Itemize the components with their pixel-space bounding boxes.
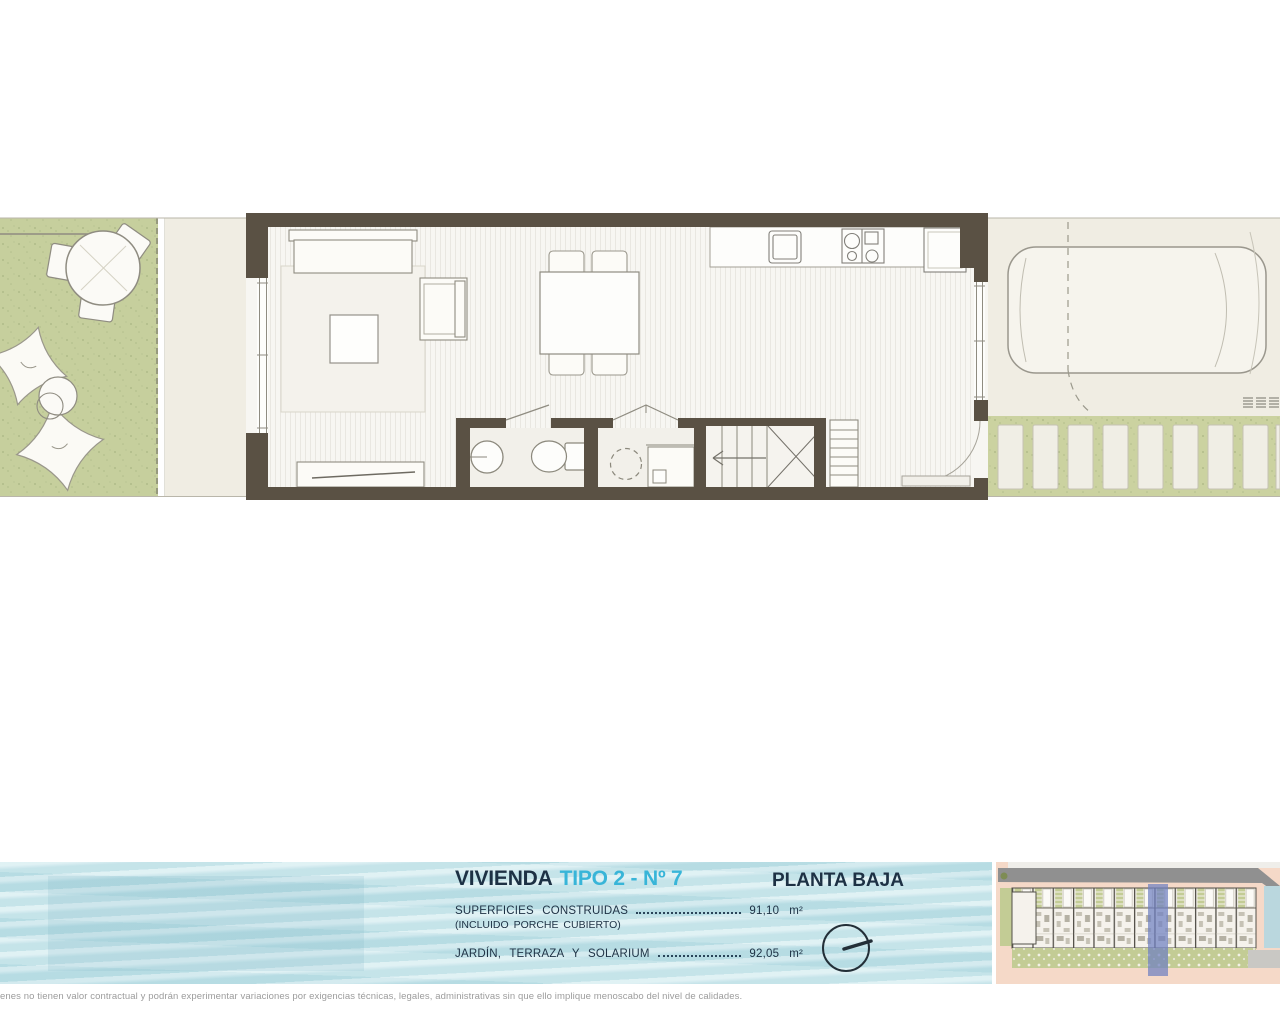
right-window (974, 282, 985, 400)
site-plan-tree (1001, 873, 1008, 880)
plan-level-label: PLANTA BAJA (772, 870, 904, 892)
sofa (289, 230, 417, 273)
washbasin (470, 441, 503, 473)
garden-area (0, 218, 165, 498)
compass-needle (844, 941, 871, 949)
site-plan-highlighted-unit (1148, 884, 1168, 976)
site-plan-thumbnail (996, 862, 1280, 984)
spec-unit: m² (789, 905, 803, 917)
surface-specs: SUPERFICIES CONSTRUIDAS 91,10 m² (INCLUI… (455, 905, 803, 960)
unit-title-type: TIPO 2 - Nº 7 (560, 867, 683, 890)
north-compass-icon (818, 920, 874, 976)
car-outline (1008, 247, 1266, 373)
kitchen-counter (710, 227, 960, 267)
site-plan-pool (1264, 886, 1280, 948)
stair-upper-flight (830, 420, 858, 487)
spec-row-garden-surface: JARDÍN, TERRAZA Y SOLARIUM 92,05 m² (455, 948, 803, 960)
spec-label: JARDÍN, TERRAZA Y SOLARIUM (455, 948, 650, 960)
spec-sublabel: (INCLUIDO PORCHE CUBIERTO) (455, 919, 803, 931)
spec-label: SUPERFICIES CONSTRUIDAS (455, 905, 628, 917)
spec-row-built-surface: SUPERFICIES CONSTRUIDAS 91,10 m² (455, 905, 803, 917)
dining-table (540, 272, 639, 354)
cooktop (842, 229, 884, 263)
water-texture-overlay (48, 876, 364, 971)
legal-disclaimer: enes no tienen valor contractual y podrá… (0, 991, 742, 1002)
dotted-leader (658, 955, 742, 957)
house (246, 213, 988, 500)
floor-plan-sheet: VIVIENDATIPO 2 - Nº 7 PLANTA BAJA SUPERF… (0, 0, 1280, 1024)
walkway-area (988, 416, 1280, 497)
tv-unit (297, 462, 424, 487)
kitchen (710, 227, 966, 272)
site-plan-unit-row (1012, 888, 1256, 948)
coffee-table (330, 315, 378, 363)
site-plan-corner-unit (1012, 892, 1036, 944)
dotted-leader (636, 912, 741, 914)
toilet (532, 441, 589, 472)
unit-title: VIVIENDATIPO 2 - Nº 7 (455, 867, 683, 891)
staircase (706, 420, 858, 487)
unit-title-prefix: VIVIENDA (455, 867, 553, 890)
doormat (902, 476, 970, 486)
spec-value: 91,10 (749, 905, 779, 917)
fridge (924, 228, 966, 272)
spec-unit: m² (789, 948, 803, 960)
parking-area (988, 218, 1280, 416)
armchair (420, 278, 467, 340)
left-window (257, 278, 268, 433)
covered-porch (165, 218, 246, 496)
spec-value: 92,05 (749, 948, 779, 960)
